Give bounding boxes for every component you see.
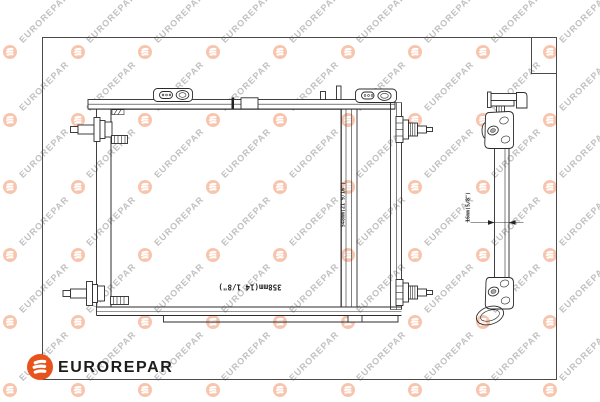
width-dimension-label: 358mm(14 1/8") bbox=[218, 282, 281, 291]
fitting-bottom-right bbox=[396, 280, 433, 306]
mounting-bracket-left bbox=[154, 89, 193, 102]
side-view-upper-bracket bbox=[482, 112, 514, 149]
core bbox=[111, 109, 341, 307]
top-bar bbox=[88, 86, 395, 109]
fitting-top-left bbox=[71, 118, 128, 144]
bottom-tank bbox=[97, 307, 402, 322]
condenser-technical-drawing: 548mm(21 9/16") 358mm(14 1/8") bbox=[0, 0, 600, 400]
eurorepar-logo-icon bbox=[27, 354, 53, 380]
mounting-bracket-right bbox=[356, 89, 397, 103]
side-view-profile bbox=[495, 149, 510, 279]
side-view: 16mm(5/8") bbox=[465, 92, 527, 328]
height-dimension-label: 548mm(21 9/16") bbox=[340, 182, 346, 227]
depth-dimension-label: 16mm(5/8") bbox=[465, 192, 471, 222]
brand-name: EUROREPAR bbox=[58, 359, 173, 377]
fitting-bottom-left bbox=[63, 282, 129, 306]
front-view: 548mm(21 9/16") 358mm(14 1/8") bbox=[63, 86, 433, 322]
fitting-top-right bbox=[396, 117, 433, 143]
depth-dimension-line bbox=[468, 219, 524, 225]
side-view-lower-bracket bbox=[485, 278, 513, 310]
left-tank bbox=[88, 109, 395, 307]
